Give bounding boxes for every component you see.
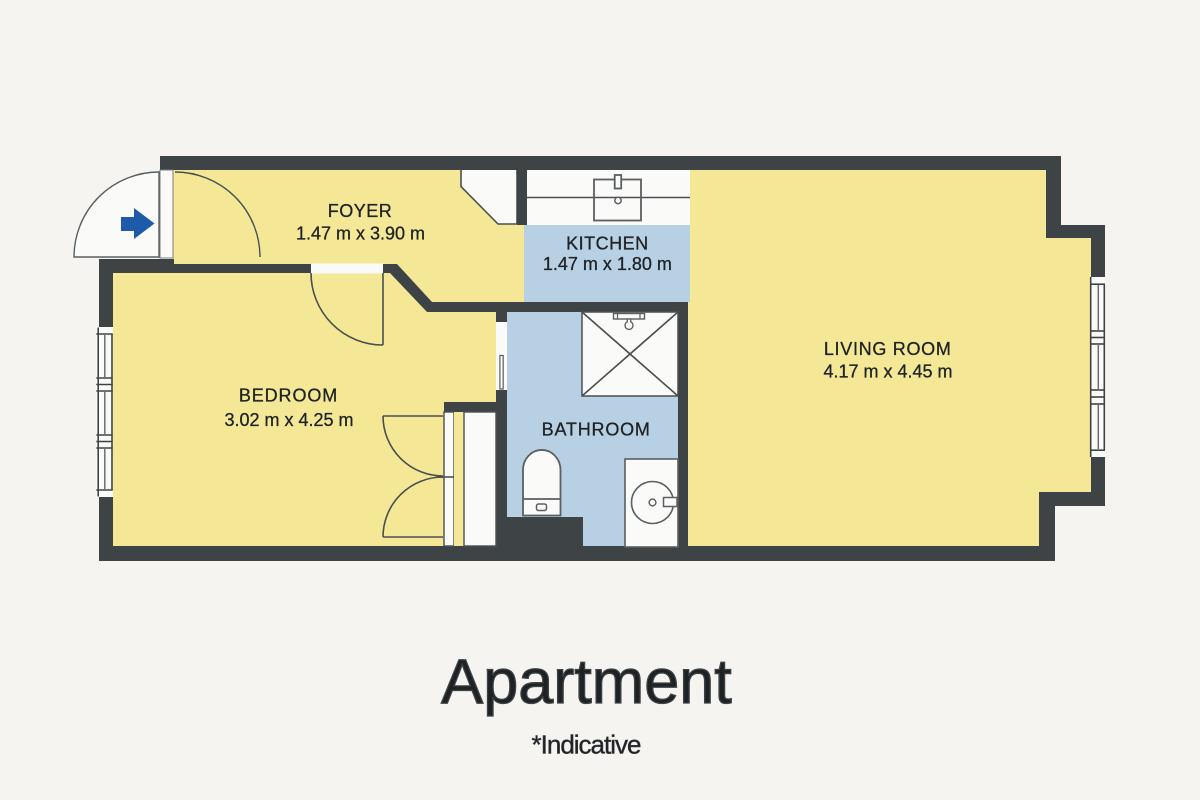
svg-text:BATHROOM: BATHROOM <box>542 420 651 440</box>
svg-text:*Indicative: *Indicative <box>532 730 641 760</box>
svg-text:1.47 m x 3.90 m: 1.47 m x 3.90 m <box>296 224 425 244</box>
svg-text:3.02 m x 4.25 m: 3.02 m x 4.25 m <box>224 410 353 430</box>
svg-text:1.47 m x 1.80 m: 1.47 m x 1.80 m <box>543 254 672 274</box>
svg-text:KITCHEN: KITCHEN <box>566 234 649 254</box>
svg-text:LIVING ROOM: LIVING ROOM <box>824 339 952 359</box>
svg-text:4.17 m x 4.45 m: 4.17 m x 4.45 m <box>823 362 952 382</box>
svg-text:BEDROOM: BEDROOM <box>239 386 338 406</box>
svg-text:FOYER: FOYER <box>328 201 393 221</box>
svg-text:Apartment: Apartment <box>441 647 732 717</box>
